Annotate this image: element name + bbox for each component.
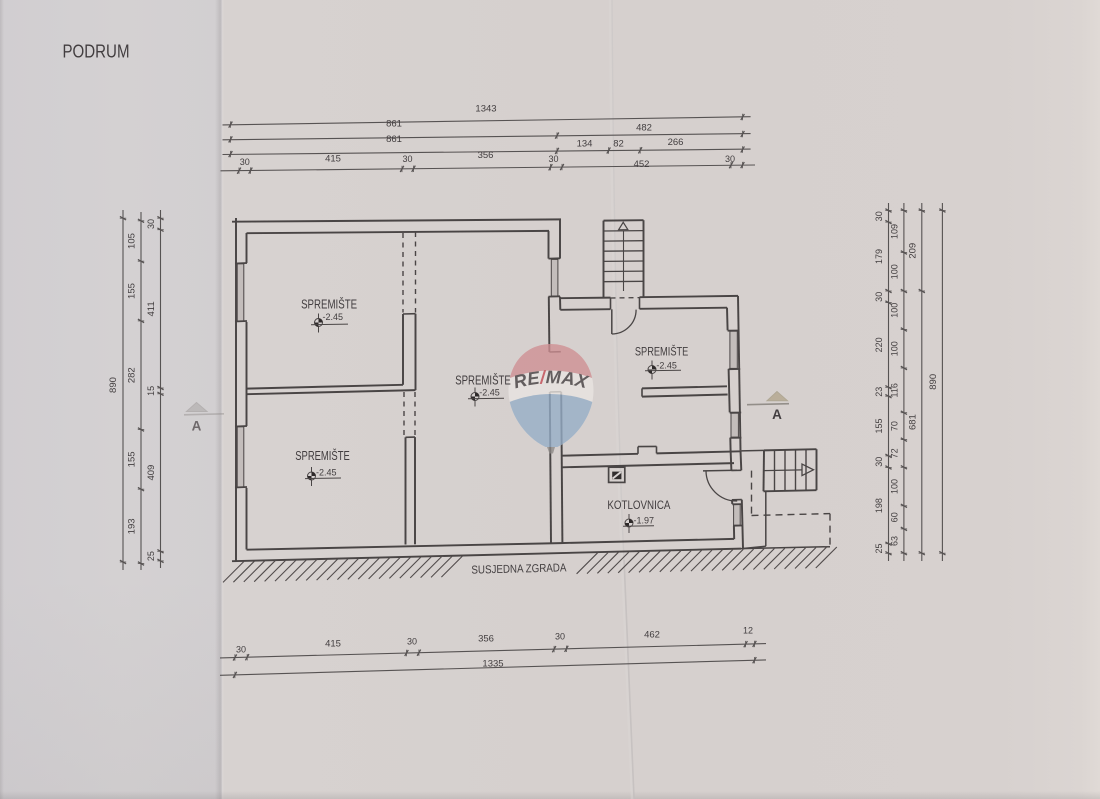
svg-text:30: 30 [402,154,412,164]
svg-text:193: 193 [127,518,138,534]
svg-text:PODRUM: PODRUM [63,42,130,62]
svg-text:70: 70 [890,421,900,431]
svg-text:415: 415 [325,639,341,650]
svg-text:155: 155 [874,418,884,433]
svg-text:266: 266 [668,137,684,148]
svg-text:356: 356 [478,634,494,645]
svg-text:-2.45: -2.45 [479,388,500,398]
svg-text:30: 30 [236,645,246,655]
svg-text:409: 409 [146,465,157,481]
svg-text:SUSJEDNA ZGRADA: SUSJEDNA ZGRADA [471,562,567,576]
svg-text:SPREMIŠTE: SPREMIŠTE [635,344,689,359]
svg-text:356: 356 [478,150,494,161]
svg-text:482: 482 [636,123,652,134]
svg-text:282: 282 [127,367,138,383]
svg-text:15: 15 [146,386,156,396]
svg-text:100: 100 [890,303,900,318]
svg-text:462: 462 [644,629,660,640]
svg-text:109: 109 [890,224,900,239]
svg-text:30: 30 [725,154,735,164]
svg-text:100: 100 [890,341,900,356]
svg-text:12: 12 [743,626,753,636]
svg-text:179: 179 [874,249,884,264]
svg-text:1335: 1335 [482,658,503,669]
svg-text:155: 155 [127,451,138,467]
svg-text:100: 100 [890,479,900,494]
svg-text:-2.45: -2.45 [323,312,344,322]
svg-text:SPREMIŠTE: SPREMIŠTE [295,448,350,463]
svg-text:861: 861 [386,119,402,130]
svg-text:SPREMIŠTE: SPREMIŠTE [455,372,511,387]
svg-text:60: 60 [890,512,900,522]
svg-text:890: 890 [108,377,119,393]
svg-text:63: 63 [890,536,900,546]
svg-text:861: 861 [386,134,402,145]
svg-text:116: 116 [890,383,900,397]
svg-text:30: 30 [874,457,884,467]
svg-text:30: 30 [874,292,884,302]
svg-text:134: 134 [577,139,593,150]
svg-text:23: 23 [874,387,884,397]
svg-text:681: 681 [908,414,919,430]
svg-text:KOTLOVNICA: KOTLOVNICA [607,498,671,512]
svg-text:A: A [192,419,202,434]
svg-text:411: 411 [146,301,157,316]
svg-text:220: 220 [874,337,884,352]
svg-text:209: 209 [908,243,919,259]
svg-text:100: 100 [890,264,900,279]
svg-text:30: 30 [240,157,250,167]
svg-text:198: 198 [874,498,884,513]
svg-text:105: 105 [127,233,138,249]
svg-text:25: 25 [874,543,884,553]
svg-text:30: 30 [874,211,884,221]
svg-text:-2.45: -2.45 [316,468,337,478]
svg-text:72: 72 [890,448,900,458]
svg-text:452: 452 [634,159,650,170]
svg-text:25: 25 [146,551,156,561]
svg-text:A: A [772,407,782,422]
svg-text:-1.97: -1.97 [634,516,655,526]
svg-text:30: 30 [407,637,417,647]
svg-text:415: 415 [325,154,341,165]
svg-text:30: 30 [146,219,156,229]
svg-text:155: 155 [127,283,138,299]
svg-text:30: 30 [548,154,558,164]
svg-text:1343: 1343 [475,104,496,115]
svg-text:890: 890 [928,374,939,390]
svg-text:30: 30 [555,632,565,642]
svg-text:82: 82 [613,138,624,149]
svg-text:-2.45: -2.45 [656,361,677,371]
svg-text:SPREMIŠTE: SPREMIŠTE [301,296,357,311]
